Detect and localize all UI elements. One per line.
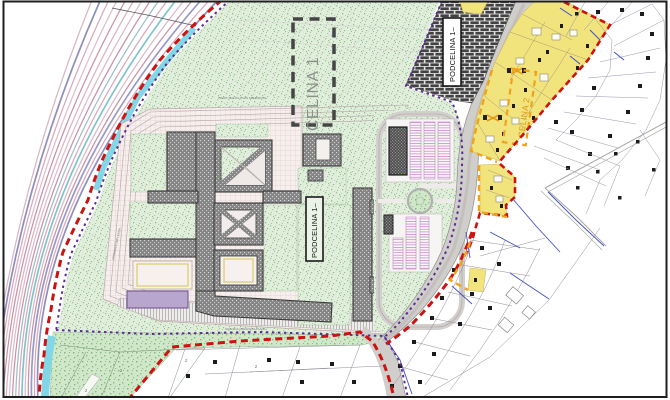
svg-text:GRANICA OBUHVATA PLANA: GRANICA OBUHVATA PLANA (225, 327, 266, 331)
svg-text:PODCELINA 1–: PODCELINA 1– (448, 26, 457, 82)
svg-text:TRAKT MALOG PUTA SREMSKOG: TRAKT MALOG PUTA SREMSKOG (218, 96, 267, 100)
svg-text:CELINA 1: CELINA 1 (305, 57, 322, 131)
svg-text:PODCELINA 1–: PODCELINA 1– (310, 202, 319, 258)
